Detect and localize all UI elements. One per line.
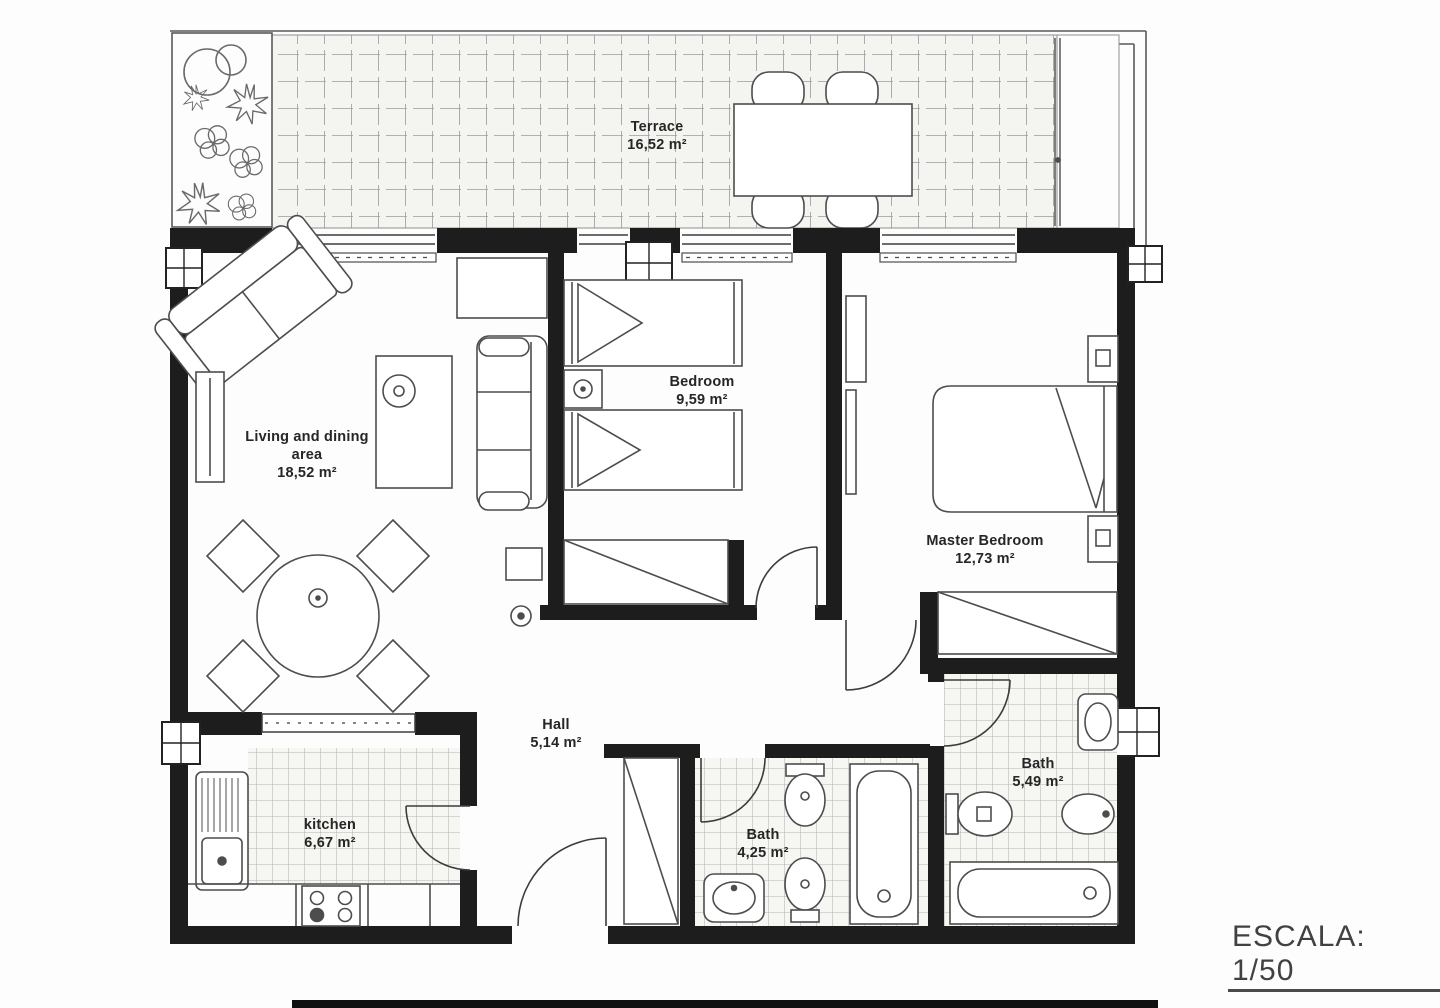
- room-name: Bath: [737, 826, 788, 844]
- window: [682, 235, 791, 244]
- room-label-bath-small: Bath 4,25 m²: [737, 826, 788, 862]
- twin-bed: [564, 410, 742, 490]
- nightstand: [1088, 516, 1118, 562]
- page-edge-bar: [292, 1000, 1158, 1008]
- terrace-table: [734, 104, 912, 196]
- room-label-bedroom: Bedroom 9,59 m²: [669, 373, 734, 409]
- stove: [302, 886, 360, 926]
- window: [882, 235, 1015, 244]
- room-name: Living and dining: [245, 428, 368, 446]
- shelf: [846, 390, 856, 494]
- room-name: Hall: [530, 716, 581, 734]
- kitchen-serving-hatch: [262, 714, 415, 732]
- toilet: [946, 792, 1012, 836]
- room-label-bath-big: Bath 5,49 m²: [1012, 755, 1063, 791]
- kitchen-sink: [196, 772, 248, 890]
- bathtub: [950, 862, 1118, 924]
- bidet: [785, 764, 825, 826]
- room-label-master-bedroom: Master Bedroom 12,73 m²: [926, 532, 1043, 568]
- side-sofa: [477, 336, 547, 510]
- shelf: [846, 296, 866, 382]
- room-label-hall: Hall 5,14 m²: [530, 716, 581, 752]
- bedroom-door: [756, 547, 817, 608]
- cabinet: [457, 258, 547, 318]
- room-area: 5,49 m²: [1012, 773, 1063, 791]
- room-area: 18,52 m²: [245, 464, 368, 482]
- room-name-line2: area: [245, 446, 368, 464]
- room-name: Master Bedroom: [926, 532, 1043, 550]
- bidet: [1062, 794, 1114, 834]
- toilet: [785, 858, 825, 922]
- nightstand: [564, 370, 602, 408]
- room-name: kitchen: [304, 816, 356, 834]
- master-bedroom-door: [846, 620, 916, 690]
- garden-bed: [172, 33, 274, 228]
- bathtub: [850, 764, 918, 924]
- hall-closet: [624, 758, 678, 924]
- room-name: Bath: [1012, 755, 1063, 773]
- hall-light-icon: [511, 606, 531, 626]
- room-name: Bedroom: [669, 373, 734, 391]
- double-bed: [933, 386, 1117, 512]
- room-area: 16,52 m²: [627, 136, 687, 154]
- hall-cupboard: [506, 548, 542, 580]
- terrace-side-strip: [1057, 35, 1119, 228]
- room-area: 5,14 m²: [530, 734, 581, 752]
- wardrobe: [564, 540, 728, 604]
- floor-plan-drawing: [0, 0, 1440, 1008]
- room-area: 6,67 m²: [304, 834, 356, 852]
- entrance-door: [518, 838, 606, 926]
- nightstand: [1088, 336, 1118, 382]
- dining-table: [257, 555, 379, 677]
- tv-cabinet: [376, 356, 452, 488]
- room-label-terrace: Terrace 16,52 m²: [627, 118, 687, 154]
- twin-bed: [564, 280, 742, 366]
- floor-plan-page: Terrace 16,52 m² Living and dining area …: [0, 0, 1440, 1008]
- room-label-living: Living and dining area 18,52 m²: [245, 428, 368, 482]
- room-area: 12,73 m²: [926, 550, 1043, 568]
- scale-label: ESCALA: 1/50: [1228, 920, 1440, 992]
- radiator: [196, 372, 224, 482]
- room-area: 9,59 m²: [669, 391, 734, 409]
- washbasin: [1078, 694, 1118, 750]
- wardrobe: [938, 592, 1117, 654]
- room-name: Terrace: [627, 118, 687, 136]
- washbasin: [704, 874, 764, 922]
- room-label-kitchen: kitchen 6,67 m²: [304, 816, 356, 852]
- room-area: 4,25 m²: [737, 844, 788, 862]
- window: [579, 235, 628, 244]
